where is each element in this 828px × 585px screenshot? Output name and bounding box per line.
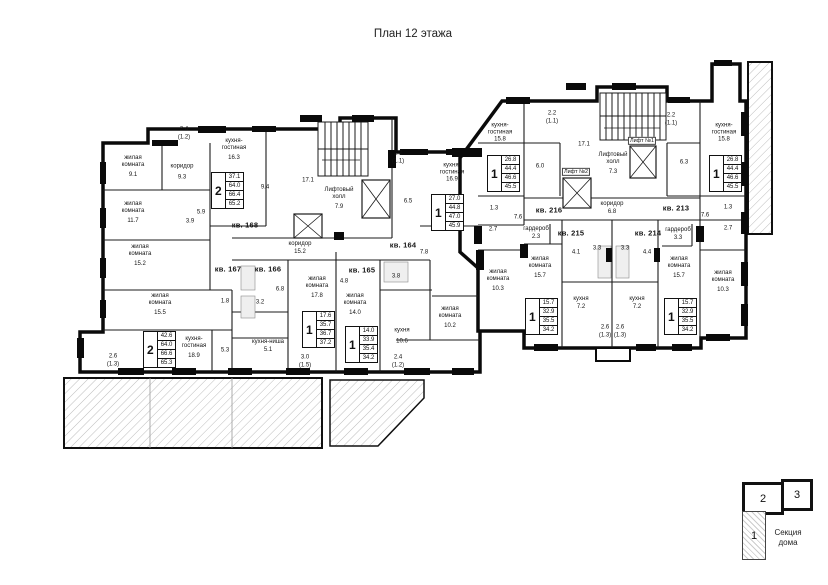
room-area: 10.3	[705, 287, 741, 294]
lift-hall-right: Лифтовый холл 7.3	[595, 152, 631, 176]
room-name: кухня-гостиная	[482, 122, 518, 135]
apt-166-balcony: 3.0 (1.5)	[299, 355, 311, 370]
apt-213-balcony: 2.2 (1.1)	[665, 113, 677, 128]
balcony-area-half: (1.3)	[614, 332, 626, 340]
stat-value: 35.7	[317, 321, 335, 330]
balcony-area: 2.2	[665, 113, 677, 121]
room-area: 15.8	[482, 137, 518, 144]
stat-value: 66.4	[226, 191, 244, 200]
room-area: 15.5	[142, 310, 178, 317]
apt-168-room-living-1: жилая комната 9.1	[115, 155, 151, 179]
room-area: 15.7	[522, 273, 558, 280]
stat-value: 46.6	[724, 174, 742, 183]
stat-value: 47.0	[446, 213, 464, 222]
room-name: жилая комната	[705, 270, 741, 283]
room-name: кухня-ниша	[250, 339, 286, 346]
center-balconies	[596, 348, 630, 361]
room-name: гардероб	[660, 227, 696, 234]
room-area: 18.9	[176, 353, 212, 360]
stat-value: 45.5	[724, 183, 742, 191]
apt-216-area: 1.3	[490, 206, 498, 213]
stat-value: 15.7	[540, 299, 558, 308]
page-title: План 12 этажа	[374, 28, 452, 40]
apt-214-area: 4.4	[643, 250, 651, 257]
legend-section-1: 1	[742, 511, 766, 560]
stairs-left-area: 17.1	[302, 178, 314, 185]
room-area: 10.3	[480, 286, 516, 293]
room-name: жилая комната	[142, 293, 178, 306]
apt-167-number: кв. 167	[215, 266, 241, 275]
room-area: 9.1	[115, 172, 151, 179]
balcony-area-half: (1.5)	[299, 362, 311, 370]
room-name: коридор	[164, 163, 200, 170]
apt-168-area: 3.9	[186, 219, 194, 226]
apt-168-balcony: 2.4 (1.2)	[178, 127, 190, 142]
stat-value: 37.1	[226, 173, 244, 182]
stairs-left	[318, 122, 368, 176]
apt-166-room-kitchen-niche: кухня-ниша 5.1	[250, 339, 286, 353]
room-name: жилая комната	[522, 256, 558, 269]
apt-214-balcony: 2.6 (1.3)	[614, 325, 626, 340]
apt-164-number: кв. 164	[390, 242, 416, 251]
room-name: кухня-гостиная	[176, 336, 212, 349]
room-name: гардероб	[518, 226, 554, 233]
apt-213-number: кв. 213	[663, 205, 689, 214]
room-area: 6.8	[594, 208, 630, 215]
apt-164-area: 7.8	[420, 250, 428, 257]
balcony-area-half: (1.2)	[178, 134, 190, 142]
room-area: 16.3	[216, 155, 252, 162]
balcony-area: 2.6	[599, 325, 611, 333]
apt-167-room-living-1: жилая комната 15.2	[122, 244, 158, 268]
apt-215-stats-table: 1 15.7 32.9 35.5 34.2	[525, 298, 558, 335]
lift-shaft-right-1	[630, 146, 656, 178]
room-area: 9.3	[164, 174, 200, 181]
apt-167-balcony: 2.6 (1.3)	[107, 354, 119, 369]
balcony-area-half: (1.1)	[546, 118, 558, 126]
stat-value: 66.6	[158, 350, 176, 359]
apt-168-room-living-2: жилая комната 11.7	[115, 201, 151, 225]
apt-166-number: кв. 166	[255, 266, 281, 275]
apt-167-room-kitchen: кухня-гостиная 18.9	[176, 336, 212, 360]
legend-section-3: 3	[781, 479, 813, 511]
lift-shaft-left-1	[362, 180, 390, 218]
balcony-area: 2.4	[392, 355, 404, 363]
apt-215-area: 4.1	[572, 250, 580, 257]
corridor-left: коридор 15.2	[282, 241, 318, 255]
apt-168-room-count: 2	[212, 173, 226, 208]
apt-168-room-kitchen: кухня-гостиная 16.3	[216, 138, 252, 162]
stat-value: 65.2	[226, 200, 244, 208]
apt-213-stats-table: 1 26.8 44.4 46.6 45.5	[709, 155, 742, 192]
apt-214-room-living: жилая комната 15.7	[661, 256, 697, 280]
room-name: коридор	[594, 201, 630, 208]
apt-216-room-count: 1	[488, 156, 502, 191]
room-name: Лифтовый холл	[321, 187, 357, 200]
lift-1-label: Лифт №1	[628, 137, 656, 145]
apt-166-room-count: 1	[303, 312, 317, 347]
apt-213-area: 6.3	[680, 160, 688, 167]
apt-214-number: кв. 214	[635, 230, 661, 239]
apt-165-stats-table: 1 14.0 33.9 35.4 34.2	[345, 326, 378, 363]
apt-216-area: 7.6	[514, 215, 522, 222]
apt-216-number: кв. 216	[536, 207, 562, 216]
room-area: 14.0	[337, 310, 373, 317]
apt-164-room-count: 1	[432, 195, 446, 230]
apt-216-balcony: 2.2 (1.1)	[546, 111, 558, 126]
balcony-area-half: (1.1)	[665, 120, 677, 128]
apt-166-area: 3.2	[256, 300, 264, 307]
balcony-area: 3.0	[299, 355, 311, 363]
apt-214-stats-table: 1 15.7 32.9 35.5 34.2	[664, 298, 697, 335]
balcony-area-half: (1.1)	[392, 158, 404, 166]
apt-213-area: 2.7	[724, 226, 732, 233]
apt-213-area: 7.6	[701, 213, 709, 220]
stat-value: 27.0	[446, 195, 464, 204]
stat-value: 35.5	[679, 317, 697, 326]
lift-hall-left: Лифтовый холл 7.9	[321, 187, 357, 211]
room-area: 17.8	[299, 293, 335, 300]
apt-214-room-count: 1	[665, 299, 679, 334]
apt-215-room-living: жилая комната 15.7	[522, 256, 558, 280]
room-name: жилая комната	[661, 256, 697, 269]
apt-166-stats-table: 1 17.6 35.7 36.7 37.2	[302, 311, 335, 348]
apt-213-room-count: 1	[710, 156, 724, 191]
stat-value: 37.2	[317, 339, 335, 347]
room-area: 7.2	[619, 303, 655, 310]
apt-164-balcony: 2.2 (1.1)	[392, 151, 404, 166]
apt-213-room-kitchen: кухня-гостиная 15.8	[706, 122, 742, 143]
apt-167-area: 1.8	[221, 299, 229, 306]
stat-value: 34.2	[360, 354, 378, 362]
apt-165-room-living: жилая комната 14.0	[337, 293, 373, 317]
stat-value: 34.2	[679, 326, 697, 334]
stairs-right	[600, 93, 666, 140]
balcony-area: 2.2	[546, 111, 558, 119]
apt-165-area: 3.8	[392, 274, 400, 281]
apt-168-area: 9.4	[261, 185, 269, 192]
apt-168-area: 5.9	[197, 210, 205, 217]
apt-165-area: 4.8	[340, 279, 348, 286]
stat-value: 64.0	[158, 341, 176, 350]
room-area: 16.9	[434, 177, 470, 184]
room-name: жилая комната	[115, 155, 151, 168]
apt-213-room-living: жилая комната 10.3	[705, 270, 741, 294]
floor-plan-page: План 12 этажа 17.1 Лифтовый холл 7.9 кор…	[0, 0, 828, 585]
stat-value: 36.7	[317, 330, 335, 339]
apt-215-room-count: 1	[526, 299, 540, 334]
stat-value: 17.6	[317, 312, 335, 321]
room-area: 7.9	[321, 204, 357, 211]
apt-167-stats-table: 2 42.6 64.0 66.6 65.3	[143, 331, 176, 368]
stat-value: 15.7	[679, 299, 697, 308]
room-name: Лифтовый холл	[595, 152, 631, 165]
stat-value: 14.0	[360, 327, 378, 336]
corridor-right: коридор 6.8	[594, 201, 630, 215]
apt-216-area: 2.7	[489, 227, 497, 234]
room-name: кухня	[619, 296, 655, 303]
lift-2-label: Лифт №2	[562, 168, 590, 176]
apt-165-number: кв. 165	[349, 267, 375, 276]
stat-value: 45.5	[502, 183, 520, 191]
room-name: кухня-гостиная	[706, 122, 742, 135]
legend-caption-line2: дома	[770, 538, 806, 548]
apt-168-room-hall: коридор 9.3	[164, 163, 200, 180]
room-area: 3.3	[660, 234, 696, 241]
room-name: жилая комната	[115, 201, 151, 214]
apt-165-room-count: 1	[346, 327, 360, 362]
stat-value: 34.2	[540, 326, 558, 334]
stairs-right-area: 17.1	[578, 142, 590, 149]
stat-value: 45.9	[446, 222, 464, 230]
stat-value: 26.8	[502, 156, 520, 165]
room-area: 10.6	[384, 338, 420, 345]
balcony-area: 2.4	[178, 127, 190, 135]
apt-167-room-living-2: жилая комната 15.5	[142, 293, 178, 317]
stat-value: 32.9	[679, 308, 697, 317]
room-name: кухня	[563, 296, 599, 303]
balcony-area-half: (1.2)	[392, 362, 404, 370]
apt-164-area: 6.5	[404, 199, 412, 206]
balcony-area: 2.2	[392, 151, 404, 159]
stat-value: 42.6	[158, 332, 176, 341]
balcony-area-half: (1.3)	[107, 361, 119, 369]
apt-213-room-wardrobe: гардероб 3.3	[660, 227, 696, 241]
legend-section-1-label: 1	[751, 530, 757, 542]
lift-shaft-right-2	[563, 178, 591, 208]
room-area: 10.2	[432, 323, 468, 330]
apt-166-area: 6.8	[276, 287, 284, 294]
apt-168-stats-table: 2 37.1 64.0 66.4 65.2	[211, 172, 244, 209]
apt-166-room-living: жилая комната 17.8	[299, 276, 335, 300]
balcony-area-half: (1.3)	[599, 332, 611, 340]
room-area: 5.1	[250, 346, 286, 353]
apt-165-balcony: 2.4 (1.2)	[392, 355, 404, 370]
apt-215-room-kitchen: кухня 7.2	[563, 296, 599, 310]
room-name: жилая комната	[480, 269, 516, 282]
balcony-area: 2.6	[614, 325, 626, 333]
apt-214-room-kitchen: кухня 7.2	[619, 296, 655, 310]
apt-168-number: кв. 168	[232, 222, 258, 231]
room-area: 7.2	[563, 303, 599, 310]
floor-plan-drawing	[0, 0, 828, 585]
room-area: 2.3	[518, 233, 554, 240]
apt-165-room-kitchen: кухня 10.6	[384, 327, 420, 344]
room-area: 11.7	[115, 218, 151, 225]
stat-value: 46.6	[502, 174, 520, 183]
apt-214-area: 3.3	[621, 246, 629, 253]
stat-value: 65.3	[158, 359, 176, 367]
room-name: жилая комната	[432, 306, 468, 319]
legend-caption-line1: Секция	[770, 528, 806, 538]
apt-164-room-living: жилая комната 10.2	[432, 306, 468, 330]
stat-value: 35.5	[540, 317, 558, 326]
room-area: 15.2	[282, 248, 318, 255]
room-name: жилая комната	[299, 276, 335, 289]
room-area: 15.2	[122, 261, 158, 268]
legend-caption: Секция дома	[770, 528, 806, 549]
stat-value: 64.0	[226, 182, 244, 191]
room-area: 15.7	[661, 273, 697, 280]
apt-213-area: 1.3	[724, 205, 732, 212]
apt-167-room-count: 2	[144, 332, 158, 367]
balcony-area: 2.6	[107, 354, 119, 362]
apt-215-room-wardrobe: гардероб 2.3	[518, 226, 554, 240]
stat-value: 44.4	[502, 165, 520, 174]
apt-215-number: кв. 215	[558, 230, 584, 239]
room-area: 7.3	[595, 169, 631, 176]
room-name: коридор	[282, 241, 318, 248]
apt-215-balcony: 2.6 (1.3)	[599, 325, 611, 340]
stat-value: 35.4	[360, 345, 378, 354]
apt-164-stats-table: 1 27.0 44.8 47.0 45.9	[431, 194, 464, 231]
apt-164-room-kitchen: кухня-гостиная 16.9	[434, 162, 470, 183]
room-name: кухня	[384, 327, 420, 334]
room-name: кухня-гостиная	[216, 138, 252, 151]
legend-section-2-label: 2	[760, 493, 766, 505]
apt-215-area: 3.3	[593, 246, 601, 253]
legend-section-3-label: 3	[794, 489, 800, 501]
stat-value: 33.9	[360, 336, 378, 345]
stat-value: 26.8	[724, 156, 742, 165]
apt-216-room-kitchen: кухня-гостиная 15.8	[482, 122, 518, 143]
room-name: кухня-гостиная	[434, 162, 470, 175]
lift-shaft-left-2	[294, 214, 322, 238]
stat-value: 44.8	[446, 204, 464, 213]
room-name: жилая комната	[122, 244, 158, 257]
stat-value: 32.9	[540, 308, 558, 317]
room-area: 15.8	[706, 137, 742, 144]
room-name: жилая комната	[337, 293, 373, 306]
apt-167-area: 5.3	[221, 348, 229, 355]
apt-216-area: 6.0	[536, 164, 544, 171]
apt-216-stats-table: 1 26.8 44.4 46.6 45.5	[487, 155, 520, 192]
apt-216-room-living: жилая комната 10.3	[480, 269, 516, 293]
stat-value: 44.4	[724, 165, 742, 174]
